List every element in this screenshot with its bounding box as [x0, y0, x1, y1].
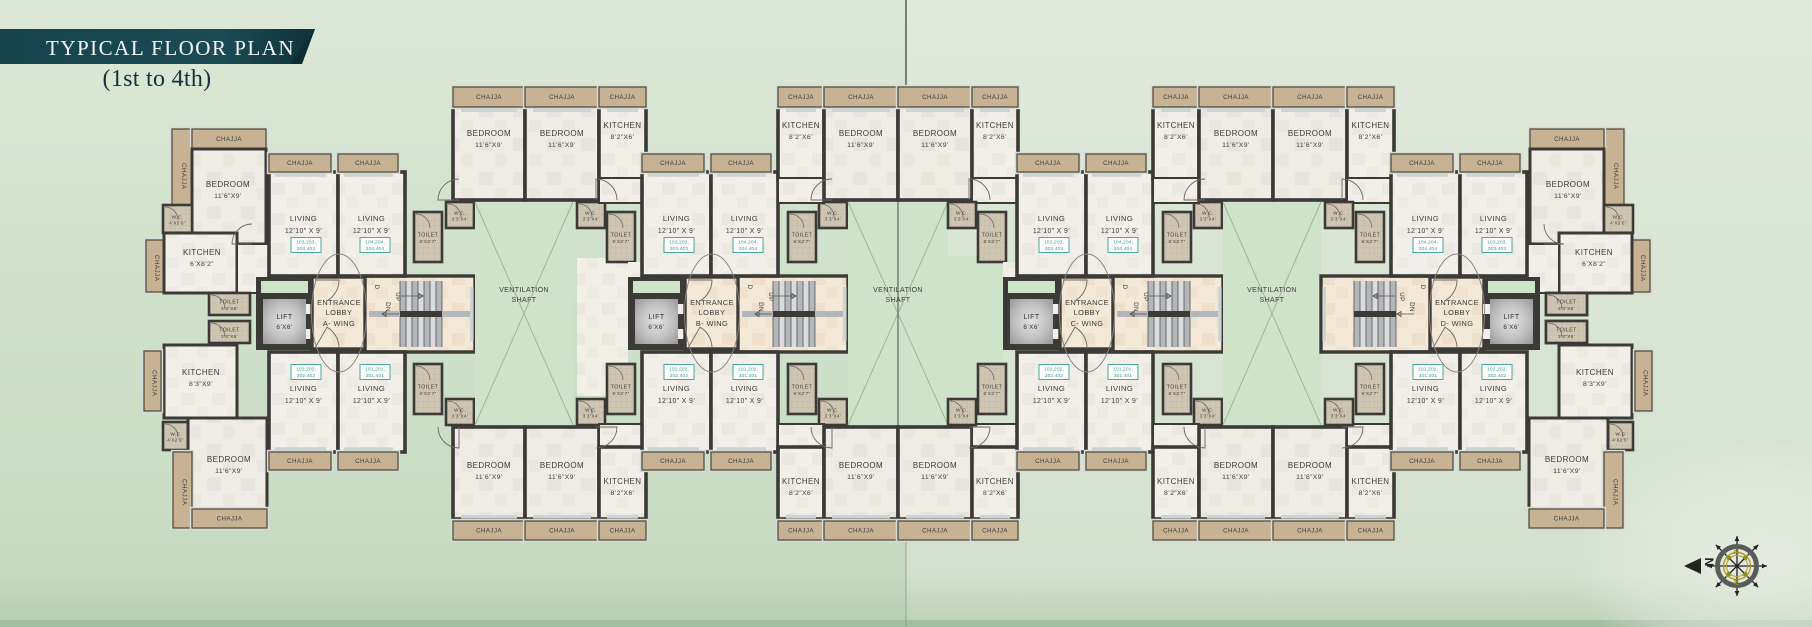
svg-text:BEDROOM: BEDROOM: [1545, 455, 1589, 464]
svg-text:LOBBY: LOBBY: [1444, 308, 1471, 317]
svg-text:KITCHEN: KITCHEN: [1352, 477, 1390, 486]
svg-text:BEDROOM: BEDROOM: [1288, 461, 1332, 470]
svg-text:KITCHEN: KITCHEN: [182, 368, 220, 377]
svg-text:302,402: 302,402: [670, 373, 689, 379]
svg-text:LIVING: LIVING: [1038, 384, 1065, 393]
svg-text:4’X5’6”: 4’X5’6”: [1610, 221, 1627, 226]
svg-text:CHAJJA: CHAJJA: [1612, 479, 1619, 506]
svg-text:6’X6’: 6’X6’: [1503, 324, 1519, 331]
svg-text:102,202,: 102,202,: [296, 367, 316, 373]
svg-text:104,204,: 104,204,: [1418, 240, 1438, 246]
svg-text:101,201,: 101,201,: [738, 367, 758, 373]
svg-text:CHAJJA: CHAJJA: [1035, 160, 1061, 167]
svg-text:W: W: [1732, 579, 1739, 586]
svg-text:11’6”X9’: 11’6”X9’: [921, 474, 949, 481]
svg-text:LIFT: LIFT: [649, 314, 665, 321]
svg-text:6’X6’: 6’X6’: [1023, 324, 1039, 331]
svg-text:D: D: [746, 285, 753, 290]
svg-text:CHAJJA: CHAJJA: [848, 528, 874, 535]
svg-text:12’10” X 9’: 12’10” X 9’: [1475, 228, 1512, 235]
svg-text:LIVING: LIVING: [358, 384, 385, 393]
svg-text:12’10” X 9’: 12’10” X 9’: [1101, 398, 1138, 405]
svg-text:6’X3’7”: 6’X3’7”: [1361, 239, 1378, 244]
svg-text:12’10” X 9’: 12’10” X 9’: [658, 228, 695, 235]
svg-text:4’X5’6”: 4’X5’6”: [169, 221, 186, 226]
svg-text:D: D: [373, 285, 380, 290]
svg-text:BEDROOM: BEDROOM: [540, 461, 584, 470]
svg-text:TOILET: TOILET: [219, 328, 240, 334]
svg-text:LIVING: LIVING: [1412, 214, 1439, 223]
svg-text:KITCHEN: KITCHEN: [1575, 248, 1613, 257]
svg-text:CHAJJA: CHAJJA: [1163, 94, 1189, 101]
svg-text:CHAJJA: CHAJJA: [1642, 370, 1649, 397]
svg-text:301,401: 301,401: [1114, 373, 1133, 379]
svg-text:TOILET: TOILET: [418, 233, 439, 239]
svg-text:BEDROOM: BEDROOM: [839, 129, 883, 138]
svg-text:LIVING: LIVING: [290, 384, 317, 393]
svg-text:CHAJJA: CHAJJA: [788, 528, 814, 535]
svg-text:11’6”X9’: 11’6”X9’: [1222, 474, 1250, 481]
svg-text:BEDROOM: BEDROOM: [207, 455, 251, 464]
svg-text:304,404: 304,404: [1114, 246, 1133, 252]
svg-text:11’6”X9’: 11’6”X9’: [1296, 474, 1324, 481]
svg-text:TOILET: TOILET: [1360, 385, 1381, 391]
svg-text:DN: DN: [384, 302, 391, 312]
svg-text:UP: UP: [394, 292, 401, 301]
svg-text:CHAJJA: CHAJJA: [1223, 528, 1249, 535]
svg-text:11’6”X9’: 11’6”X9’: [475, 142, 503, 149]
svg-text:KITCHEN: KITCHEN: [1352, 121, 1390, 130]
svg-text:12’10” X 9’: 12’10” X 9’: [1033, 228, 1070, 235]
svg-text:11’6”X9’: 11’6”X9’: [847, 474, 875, 481]
svg-text:CHAJJA: CHAJJA: [1409, 160, 1435, 167]
svg-text:TOILET: TOILET: [1360, 233, 1381, 239]
svg-text:CHAJJA: CHAJJA: [355, 160, 381, 167]
svg-text:6’X6’: 6’X6’: [276, 324, 292, 331]
svg-text:CHAJJA: CHAJJA: [1477, 160, 1503, 167]
svg-text:D: D: [1121, 285, 1128, 290]
svg-text:304,404: 304,404: [739, 246, 758, 252]
svg-text:12’10” X 9’: 12’10” X 9’: [1101, 228, 1138, 235]
svg-text:3’3”X4’: 3’3”X4’: [452, 217, 468, 222]
svg-text:4’X2’5”: 4’X2’5”: [1612, 438, 1629, 443]
svg-text:303,403: 303,403: [1488, 246, 1507, 252]
svg-text:3’3”X4’: 3’3”X4’: [583, 217, 599, 222]
svg-text:301,401: 301,401: [739, 373, 758, 379]
svg-text:3’3”X4’: 3’3”X4’: [825, 217, 841, 222]
svg-text:DN: DN: [1408, 302, 1415, 312]
svg-text:BEDROOM: BEDROOM: [1288, 129, 1332, 138]
svg-text:CHAJJA: CHAJJA: [1409, 458, 1435, 465]
svg-text:3’3”X4’: 3’3”X4’: [1331, 217, 1347, 222]
svg-text:LIFT: LIFT: [1024, 314, 1040, 321]
svg-text:LIVING: LIVING: [1480, 384, 1507, 393]
svg-text:303,403: 303,403: [297, 246, 316, 252]
svg-text:8’2”X6’: 8’2”X6’: [789, 490, 813, 497]
svg-text:301,401: 301,401: [1419, 373, 1438, 379]
svg-text:6’X3’7”: 6’X3’7”: [612, 239, 629, 244]
svg-text:303,403: 303,403: [670, 246, 689, 252]
svg-text:12’10” X 9’: 12’10” X 9’: [1407, 398, 1444, 405]
svg-text:CHAJJA: CHAJJA: [181, 479, 188, 506]
svg-text:VENTILATION: VENTILATION: [1247, 287, 1297, 294]
svg-text:KITCHEN: KITCHEN: [976, 121, 1014, 130]
svg-text:CHAJJA: CHAJJA: [1358, 94, 1384, 101]
svg-text:N: N: [1702, 558, 1716, 567]
svg-text:12’10” X 9’: 12’10” X 9’: [285, 228, 322, 235]
svg-text:CHAJJA: CHAJJA: [1639, 255, 1646, 282]
svg-text:CHAJJA: CHAJJA: [922, 528, 948, 535]
svg-text:TOILET: TOILET: [219, 300, 240, 306]
svg-text:CHAJJA: CHAJJA: [610, 94, 636, 101]
svg-text:KITCHEN: KITCHEN: [1157, 121, 1195, 130]
svg-text:8’2”X6’: 8’2”X6’: [1164, 490, 1188, 497]
svg-text:CHAJJA: CHAJJA: [922, 94, 948, 101]
svg-text:6’X3’7”: 6’X3’7”: [983, 239, 1000, 244]
svg-text:12’10” X 9’: 12’10” X 9’: [1033, 398, 1070, 405]
svg-text:11’6”X9’: 11’6”X9’: [1222, 142, 1250, 149]
svg-text:D- WING: D- WING: [1441, 319, 1474, 328]
svg-text:11’6”X9’: 11’6”X9’: [921, 142, 949, 149]
svg-text:103,203,: 103,203,: [1487, 240, 1507, 246]
svg-text:SHAFT: SHAFT: [1260, 297, 1285, 304]
svg-text:LIVING: LIVING: [731, 384, 758, 393]
svg-text:CHAJJA: CHAJJA: [1223, 94, 1249, 101]
svg-text:CHAJJA: CHAJJA: [1163, 528, 1189, 535]
svg-text:11’6”X9’: 11’6”X9’: [1553, 468, 1581, 475]
svg-text:TOILET: TOILET: [1556, 328, 1577, 334]
svg-text:8’2”X6’: 8’2”X6’: [1359, 490, 1383, 497]
svg-text:ENTRANCE: ENTRANCE: [1435, 298, 1479, 307]
svg-text:LIVING: LIVING: [1106, 214, 1133, 223]
svg-text:12’10” X 9’: 12’10” X 9’: [353, 398, 390, 405]
svg-text:CHAJJA: CHAJJA: [1477, 458, 1503, 465]
svg-text:102,202,: 102,202,: [1044, 367, 1064, 373]
svg-text:104,204,: 104,204,: [738, 240, 758, 246]
svg-text:CHAJJA: CHAJJA: [151, 370, 158, 397]
svg-text:BEDROOM: BEDROOM: [1546, 180, 1590, 189]
svg-text:BEDROOM: BEDROOM: [1214, 461, 1258, 470]
svg-text:UP: UP: [1398, 292, 1405, 301]
svg-text:CHAJJA: CHAJJA: [216, 136, 242, 143]
svg-text:BEDROOM: BEDROOM: [913, 129, 957, 138]
svg-text:6’X3’7”: 6’X3’7”: [793, 239, 810, 244]
svg-text:3’3”X4’: 3’3”X4’: [583, 414, 599, 419]
svg-text:104,204,: 104,204,: [365, 240, 385, 246]
svg-text:KITCHEN: KITCHEN: [1576, 368, 1614, 377]
svg-text:8’3”X9’: 8’3”X9’: [1583, 381, 1607, 388]
svg-text:101,201,: 101,201,: [1113, 367, 1133, 373]
svg-text:12’10” X 9’: 12’10” X 9’: [285, 398, 322, 405]
svg-text:CHAJJA: CHAJJA: [982, 94, 1008, 101]
svg-text:LOBBY: LOBBY: [326, 308, 353, 317]
svg-text:CHAJJA: CHAJJA: [1554, 516, 1580, 523]
svg-text:CHAJJA: CHAJJA: [728, 160, 754, 167]
svg-text:SHAFT: SHAFT: [512, 297, 537, 304]
svg-text:LOBBY: LOBBY: [699, 308, 726, 317]
svg-text:LIVING: LIVING: [731, 214, 758, 223]
svg-text:3’3”X4’: 3’3”X4’: [954, 414, 970, 419]
svg-text:DN: DN: [757, 302, 764, 312]
svg-text:6’X3’7”: 6’X3’7”: [1168, 239, 1185, 244]
svg-text:11’6”X9’: 11’6”X9’: [1296, 142, 1324, 149]
svg-text:CHAJJA: CHAJJA: [1297, 94, 1323, 101]
svg-text:ENTRANCE: ENTRANCE: [317, 298, 361, 307]
svg-text:KITCHEN: KITCHEN: [782, 121, 820, 130]
svg-text:LIVING: LIVING: [290, 214, 317, 223]
svg-text:LIFT: LIFT: [277, 314, 293, 321]
svg-text:103,203,: 103,203,: [1044, 240, 1064, 246]
svg-text:CHAJJA: CHAJJA: [1554, 136, 1580, 143]
svg-text:6’X3’7”: 6’X3’7”: [1168, 391, 1185, 396]
svg-text:D: D: [1419, 285, 1426, 290]
svg-text:11’6”X9’: 11’6”X9’: [548, 142, 576, 149]
svg-text:CHAJJA: CHAJJA: [287, 160, 313, 167]
svg-text:303,403: 303,403: [1045, 246, 1064, 252]
svg-text:BEDROOM: BEDROOM: [467, 461, 511, 470]
svg-text:KITCHEN: KITCHEN: [604, 477, 642, 486]
svg-text:TOILET: TOILET: [1556, 300, 1577, 306]
svg-text:103,203,: 103,203,: [669, 240, 689, 246]
svg-text:KITCHEN: KITCHEN: [183, 248, 221, 257]
svg-text:LIVING: LIVING: [358, 214, 385, 223]
svg-text:TOILET: TOILET: [982, 233, 1003, 239]
svg-text:LIVING: LIVING: [1106, 384, 1133, 393]
svg-text:TOILET: TOILET: [1167, 385, 1188, 391]
svg-text:8’2”X6’: 8’2”X6’: [611, 490, 635, 497]
svg-text:3’3”X6’: 3’3”X6’: [221, 334, 238, 339]
svg-text:3’3”X4’: 3’3”X4’: [452, 414, 468, 419]
svg-text:3’3”X4’: 3’3”X4’: [1331, 414, 1347, 419]
svg-text:6’X3’7”: 6’X3’7”: [419, 391, 436, 396]
svg-text:CHAJJA: CHAJJA: [1612, 163, 1619, 190]
svg-text:6’X3’7”: 6’X3’7”: [793, 391, 810, 396]
svg-text:6’X8’2”: 6’X8’2”: [1582, 261, 1606, 268]
svg-text:8’2”X6’: 8’2”X6’: [789, 134, 813, 141]
svg-text:SHAFT: SHAFT: [886, 297, 911, 304]
svg-text:3’3”X4’: 3’3”X4’: [1200, 217, 1216, 222]
svg-text:CHAJJA: CHAJJA: [355, 458, 381, 465]
svg-text:TOILET: TOILET: [792, 233, 813, 239]
svg-text:DN: DN: [1132, 302, 1139, 312]
svg-text:8’2”X6’: 8’2”X6’: [983, 134, 1007, 141]
svg-text:11’6”X9’: 11’6”X9’: [548, 474, 576, 481]
svg-text:3’3”X4’: 3’3”X4’: [825, 414, 841, 419]
svg-text:3’3”X6’: 3’3”X6’: [221, 306, 238, 311]
svg-text:3’3”X4’: 3’3”X4’: [1200, 414, 1216, 419]
svg-text:11’6”X9’: 11’6”X9’: [214, 193, 242, 200]
svg-text:CHAJJA: CHAJJA: [287, 458, 313, 465]
svg-text:6’X8’2”: 6’X8’2”: [190, 261, 214, 268]
svg-text:TOILET: TOILET: [792, 385, 813, 391]
svg-text:CHAJJA: CHAJJA: [660, 458, 686, 465]
svg-text:LIFT: LIFT: [1504, 314, 1520, 321]
svg-text:8’2”X6’: 8’2”X6’: [983, 490, 1007, 497]
svg-text:12’10” X 9’: 12’10” X 9’: [658, 398, 695, 405]
svg-text:ENTRANCE: ENTRANCE: [1065, 298, 1109, 307]
svg-text:CHAJJA: CHAJJA: [610, 528, 636, 535]
svg-text:12’10” X 9’: 12’10” X 9’: [726, 228, 763, 235]
svg-text:TOILET: TOILET: [1167, 233, 1188, 239]
svg-text:12’10” X 9’: 12’10” X 9’: [353, 228, 390, 235]
svg-text:101,201,: 101,201,: [365, 367, 385, 373]
svg-text:6’X6’: 6’X6’: [648, 324, 664, 331]
svg-text:LIVING: LIVING: [1480, 214, 1507, 223]
svg-text:8’3”X9’: 8’3”X9’: [189, 381, 213, 388]
svg-text:11’6”X9’: 11’6”X9’: [215, 468, 243, 475]
svg-text:12’10” X 9’: 12’10” X 9’: [1407, 228, 1444, 235]
svg-text:LIVING: LIVING: [663, 384, 690, 393]
svg-text:304,404: 304,404: [366, 246, 385, 252]
svg-text:11’6”X9’: 11’6”X9’: [847, 142, 875, 149]
svg-text:TYPICAL FLOOR PLAN: TYPICAL FLOOR PLAN: [46, 36, 295, 60]
svg-text:CHAJJA: CHAJJA: [1035, 458, 1061, 465]
svg-text:TOILET: TOILET: [611, 385, 632, 391]
svg-text:301,401: 301,401: [366, 373, 385, 379]
svg-text:104,204,: 104,204,: [1113, 240, 1133, 246]
svg-text:LIVING: LIVING: [1412, 384, 1439, 393]
svg-text:CHAJJA: CHAJJA: [180, 163, 187, 190]
svg-text:VENTILATION: VENTILATION: [499, 287, 549, 294]
svg-text:CHAJJA: CHAJJA: [660, 160, 686, 167]
svg-text:6’X3’7”: 6’X3’7”: [1361, 391, 1378, 396]
svg-text:BEDROOM: BEDROOM: [913, 461, 957, 470]
svg-text:CHAJJA: CHAJJA: [476, 528, 502, 535]
svg-text:302,402: 302,402: [1045, 373, 1064, 379]
svg-text:LIVING: LIVING: [1038, 214, 1065, 223]
svg-text:102,202,: 102,202,: [1487, 367, 1507, 373]
svg-text:12’10” X 9’: 12’10” X 9’: [1475, 398, 1512, 405]
svg-text:101,201,: 101,201,: [1418, 367, 1438, 373]
svg-text:6’X3’7”: 6’X3’7”: [983, 391, 1000, 396]
svg-text:TOILET: TOILET: [418, 385, 439, 391]
svg-text:ENTRANCE: ENTRANCE: [690, 298, 734, 307]
svg-text:TOILET: TOILET: [982, 385, 1003, 391]
svg-text:11’6”X9’: 11’6”X9’: [475, 474, 503, 481]
svg-text:103,203,: 103,203,: [296, 240, 316, 246]
svg-text:UP: UP: [767, 292, 774, 301]
svg-text:BEDROOM: BEDROOM: [467, 129, 511, 138]
svg-text:CHAJJA: CHAJJA: [728, 458, 754, 465]
svg-text:CHAJJA: CHAJJA: [1358, 528, 1384, 535]
svg-text:LIVING: LIVING: [663, 214, 690, 223]
svg-text:302,402: 302,402: [297, 373, 316, 379]
svg-text:3’3”X6’: 3’3”X6’: [1558, 306, 1575, 311]
svg-text:3’3”X4’: 3’3”X4’: [954, 217, 970, 222]
svg-text:VENTILATION: VENTILATION: [873, 287, 923, 294]
svg-text:CHAJJA: CHAJJA: [153, 255, 160, 282]
svg-text:C- WING: C- WING: [1071, 319, 1104, 328]
svg-text:BEDROOM: BEDROOM: [839, 461, 883, 470]
svg-text:4’X2’5”: 4’X2’5”: [167, 438, 184, 443]
svg-text:UP: UP: [1142, 292, 1149, 301]
svg-text:KITCHEN: KITCHEN: [782, 477, 820, 486]
svg-text:TOILET: TOILET: [611, 233, 632, 239]
svg-text:304,404: 304,404: [1419, 246, 1438, 252]
svg-text:102,202,: 102,202,: [669, 367, 689, 373]
svg-text:KITCHEN: KITCHEN: [976, 477, 1014, 486]
svg-text:CHAJJA: CHAJJA: [549, 94, 575, 101]
svg-text:6’X3’7”: 6’X3’7”: [612, 391, 629, 396]
svg-text:A- WING: A- WING: [323, 319, 355, 328]
svg-text:CHAJJA: CHAJJA: [848, 94, 874, 101]
svg-text:11’6”X9’: 11’6”X9’: [1554, 193, 1582, 200]
svg-text:12’10” X 9’: 12’10” X 9’: [726, 398, 763, 405]
svg-text:E: E: [1732, 550, 1739, 555]
svg-text:LOBBY: LOBBY: [1074, 308, 1101, 317]
svg-text:8’2”X6’: 8’2”X6’: [1164, 134, 1188, 141]
svg-text:302,402: 302,402: [1488, 373, 1507, 379]
svg-text:CHAJJA: CHAJJA: [1103, 160, 1129, 167]
svg-text:CHAJJA: CHAJJA: [982, 528, 1008, 535]
svg-text:KITCHEN: KITCHEN: [604, 121, 642, 130]
svg-text:8’2”X6’: 8’2”X6’: [1359, 134, 1383, 141]
svg-text:BEDROOM: BEDROOM: [1214, 129, 1258, 138]
svg-text:CHAJJA: CHAJJA: [1297, 528, 1323, 535]
svg-text:CHAJJA: CHAJJA: [476, 94, 502, 101]
svg-text:CHAJJA: CHAJJA: [549, 528, 575, 535]
svg-text:BEDROOM: BEDROOM: [206, 180, 250, 189]
svg-text:3’3”X6’: 3’3”X6’: [1558, 334, 1575, 339]
svg-text:KITCHEN: KITCHEN: [1157, 477, 1195, 486]
svg-text:CHAJJA: CHAJJA: [217, 516, 243, 523]
svg-text:8’2”X6’: 8’2”X6’: [611, 134, 635, 141]
svg-text:6’X3’7”: 6’X3’7”: [419, 239, 436, 244]
svg-text:B- WING: B- WING: [696, 319, 728, 328]
svg-text:(1st to 4th): (1st to 4th): [103, 66, 212, 92]
svg-text:BEDROOM: BEDROOM: [540, 129, 584, 138]
svg-text:CHAJJA: CHAJJA: [788, 94, 814, 101]
svg-text:CHAJJA: CHAJJA: [1103, 458, 1129, 465]
